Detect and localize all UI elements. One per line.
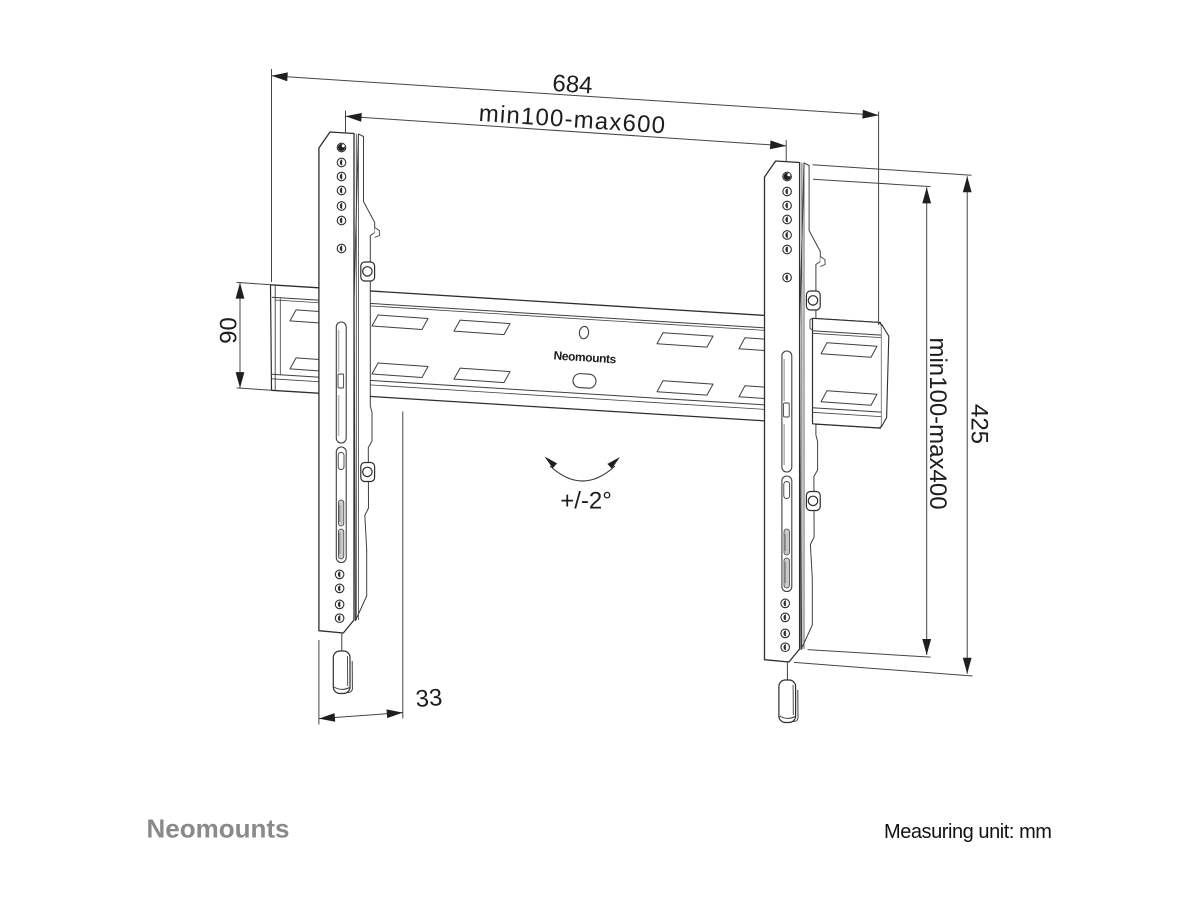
svg-text:425: 425 (965, 404, 992, 444)
svg-text:Neomounts: Neomounts (147, 814, 290, 844)
svg-text:+/-2°: +/-2° (560, 488, 612, 515)
svg-text:90: 90 (215, 317, 242, 344)
svg-text:min100-max400: min100-max400 (924, 337, 951, 509)
svg-text:684: 684 (552, 70, 594, 100)
svg-text:33: 33 (415, 684, 444, 713)
svg-text:Measuring unit: mm: Measuring unit: mm (884, 821, 1052, 843)
